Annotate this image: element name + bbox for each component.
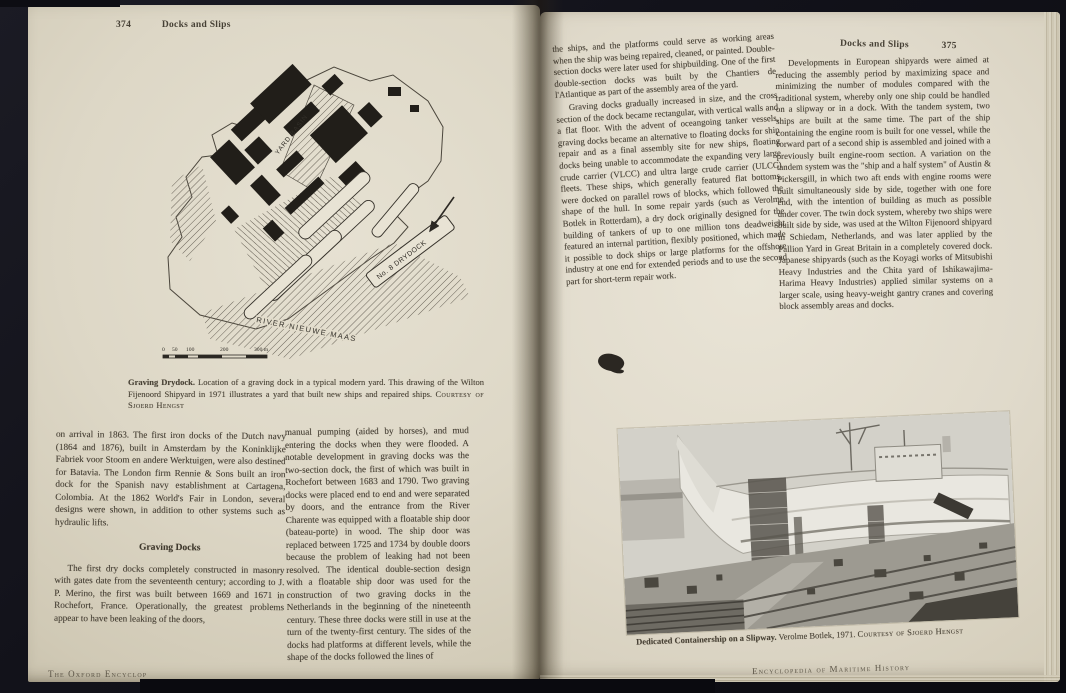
photo-superstructure [875,444,942,481]
right-page-column-1: the ships, and the platforms could serve… [552,31,788,288]
photo-caption-courtesy: Courtesy of Sjoerd Hengst [857,625,963,639]
shipyard-plan-figure: No. 8 DRYDOCK YARD BASIN RIVER NIEUWE MA… [138,29,483,377]
left-page-number: 374 [116,20,131,30]
photo-mast [904,430,905,446]
right-page: Docks and Slips 375 the ships, and the p… [540,12,1060,682]
photo-funnel [942,436,951,452]
photo-caption-lead: Dedicated Containership on a Slipway. [636,632,777,647]
right-running-head-title: Docks and Slips [840,39,909,50]
scale-tick-100: 100 [186,347,195,353]
scale-tick-50: 50 [172,347,178,353]
ink-smudge [596,350,626,374]
left-footer: The Oxford Encyclop [48,669,147,679]
figure-caption-lead: Graving Drydock. [128,377,195,387]
hatched-area-west [170,165,216,261]
right-page-number: 375 [941,41,956,51]
river-hatch [202,243,470,359]
containership-photo-art [618,411,1019,635]
small-building-1 [388,87,401,96]
photo-caption-text: Verolme Botlek, 1971. [776,629,857,642]
left-page-column-2: manual pumping (aided by horses), and mu… [285,424,471,663]
book-photo: 374 Docks and Slips [0,0,1066,693]
paragraph: Developments in European shipyards were … [775,54,993,313]
paragraph: The first dry docks completely construct… [54,561,285,626]
right-running-head: Docks and Slips 375 [840,39,957,51]
right-footer: Encyclopedia of Maritime History [752,662,910,676]
figure-caption: Graving Drydock. Location of a graving d… [128,377,484,412]
scale-tick-0: 0 [162,347,165,353]
paragraph: manual pumping (aided by horses), and mu… [285,424,471,663]
scale-tick-200: 200 [220,347,229,353]
shipyard-plan-drawing: No. 8 DRYDOCK YARD BASIN RIVER NIEUWE MA… [138,29,483,377]
small-building-2 [410,105,419,112]
photo-distant-shore [620,478,685,541]
scale-tick-300: 300 m [254,347,269,353]
cover-edge-bottom [140,679,715,693]
left-page: 374 Docks and Slips [28,5,540,682]
paragraph: on arrival in 1863. The first iron docks… [55,428,286,530]
paragraph: Graving docks gradually increased in siz… [555,90,788,288]
cover-edge-top [0,0,120,7]
left-page-column-1: on arrival in 1863. The first iron docks… [54,428,286,626]
right-page-column-2: Developments in European shipyards were … [775,54,993,313]
section-heading-graving-docks: Graving Docks [55,541,285,556]
containership-photo [618,411,1019,635]
